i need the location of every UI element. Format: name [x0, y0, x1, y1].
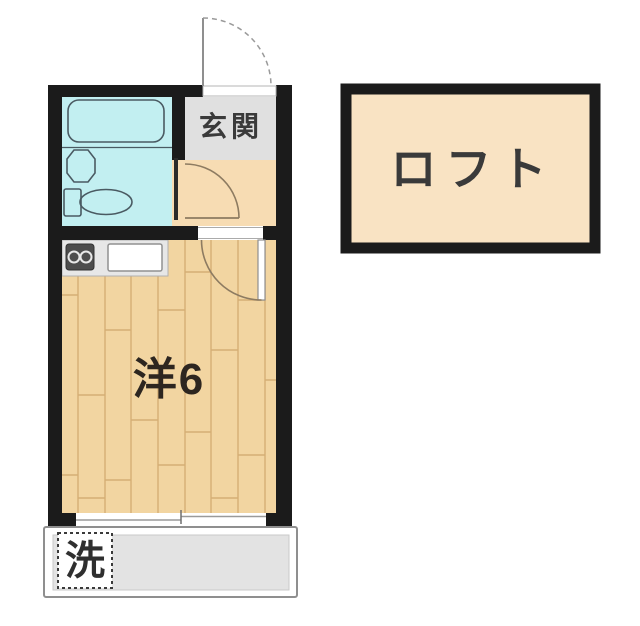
- wall-mid-right: [263, 226, 292, 240]
- loft-label: ロフト: [391, 146, 556, 192]
- laundry-label: 洗: [65, 541, 105, 581]
- bathroom-floor: [62, 97, 172, 226]
- floorplan-drawing: [0, 0, 640, 626]
- wall-bottom-left: [48, 513, 76, 528]
- floorplan-canvas: 玄関 洋6 ロフト 洗: [0, 0, 640, 626]
- wall-right: [276, 85, 292, 528]
- entrance-door-swing-arc: [203, 18, 271, 86]
- kitchen-sink-icon: [108, 244, 162, 271]
- main-room-label: 洋6: [133, 358, 205, 402]
- bathroom-door-leaf: [174, 158, 178, 220]
- kitchen-counter: [62, 240, 168, 276]
- wall-left: [48, 85, 62, 528]
- main-door-opening: [198, 227, 263, 239]
- wall-mid-left: [48, 226, 198, 240]
- hallway-floor: [172, 160, 276, 226]
- entrance-threshold: [203, 86, 276, 96]
- wall-bathroom-right: [172, 85, 185, 160]
- wall-bottom-right: [266, 513, 292, 528]
- genkan-label: 玄関: [199, 113, 263, 141]
- main-door-leaf: [258, 240, 265, 300]
